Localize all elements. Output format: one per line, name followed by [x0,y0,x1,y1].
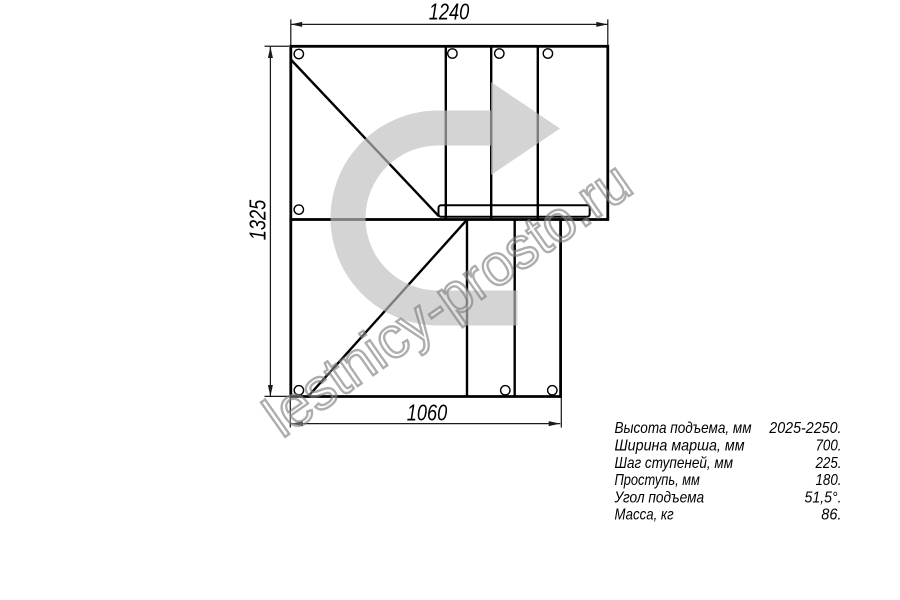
svg-text:1325: 1325 [245,199,271,240]
svg-text:Ширина марша, мм: Ширина марша, мм [615,438,745,455]
svg-text:Проступь, мм: Проступь, мм [615,472,700,489]
svg-text:Высота подъема, мм: Высота подъема, мм [615,420,752,437]
svg-text:700.: 700. [816,438,842,455]
svg-text:Угол подъема: Угол подъема [614,489,705,506]
svg-text:225.: 225. [815,455,842,472]
svg-text:1060: 1060 [407,400,448,426]
svg-text:86.: 86. [821,507,841,524]
svg-text:Масса, кг: Масса, кг [615,507,674,524]
svg-text:Шаг ступеней, мм: Шаг ступеней, мм [615,455,734,472]
svg-text:51,5°.: 51,5°. [805,489,842,506]
svg-text:2025-2250.: 2025-2250. [768,420,841,437]
svg-text:1240: 1240 [429,0,470,25]
svg-text:180.: 180. [816,472,842,489]
